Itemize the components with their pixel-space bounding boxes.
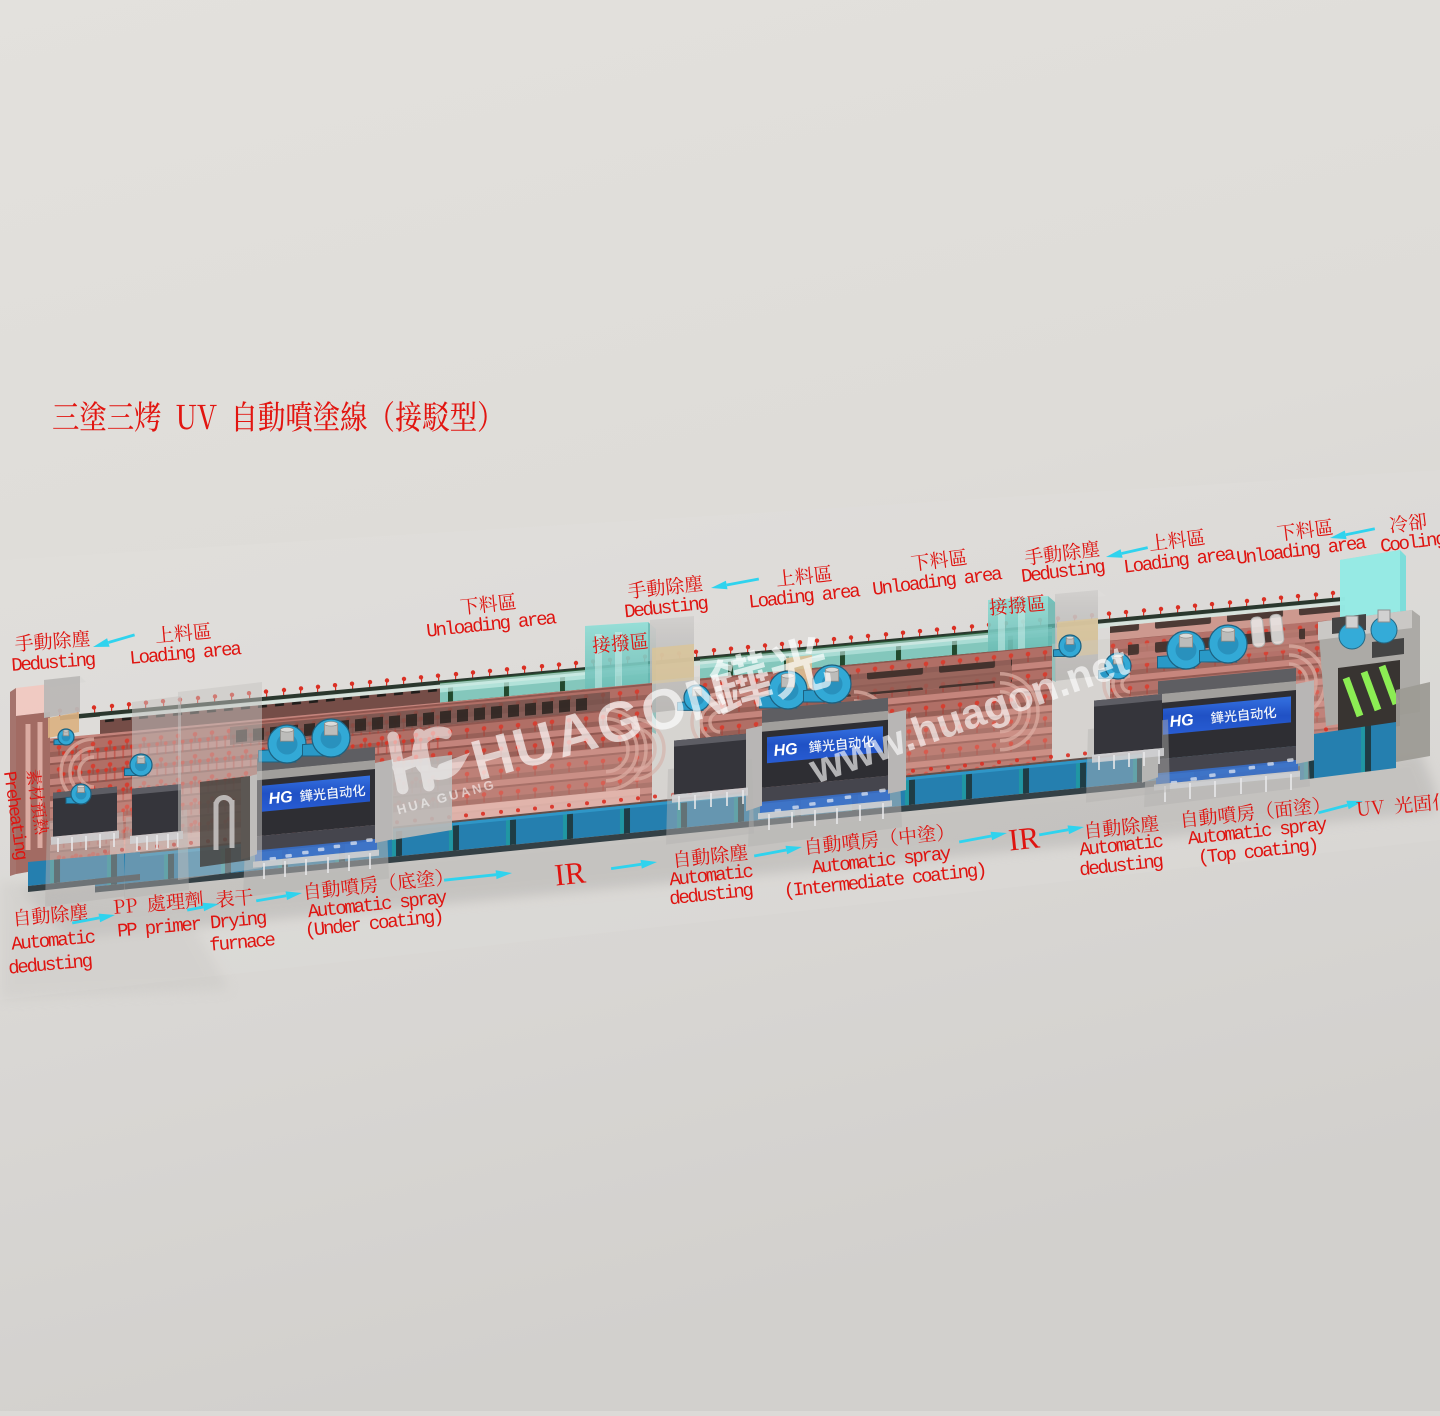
- svg-text:IR: IR: [1007, 819, 1042, 857]
- svg-text:IR: IR: [553, 854, 588, 892]
